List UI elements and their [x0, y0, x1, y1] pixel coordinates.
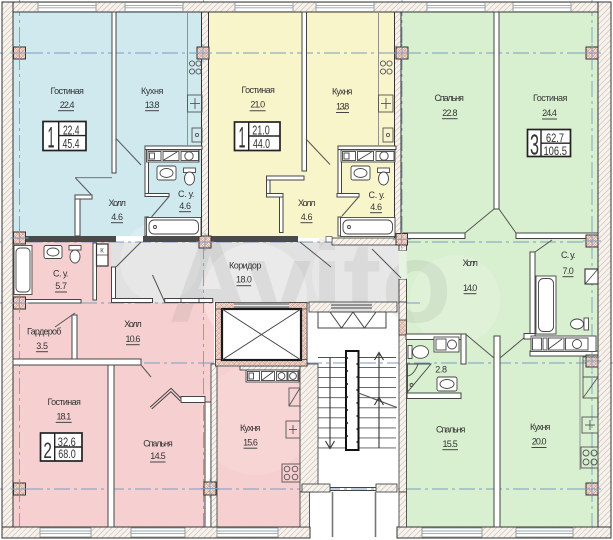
svg-text:2.8: 2.8 [435, 365, 447, 375]
svg-text:Кухня: Кухня [332, 87, 353, 97]
svg-text:13.8: 13.8 [145, 100, 160, 110]
svg-text:2: 2 [43, 438, 52, 463]
svg-text:С. у.: С. у. [178, 189, 194, 199]
svg-text:18.1: 18.1 [56, 412, 71, 422]
svg-text:4.6: 4.6 [370, 202, 382, 212]
svg-text:Гостиная: Гостиная [242, 85, 276, 95]
svg-text:21.0: 21.0 [252, 124, 270, 138]
svg-text:4.6: 4.6 [301, 212, 313, 222]
svg-text:106.5: 106.5 [543, 144, 567, 158]
svg-text:С. у.: С. у. [53, 269, 68, 279]
svg-text:4.6: 4.6 [111, 212, 123, 222]
svg-text:7.0: 7.0 [563, 266, 574, 276]
svg-text:Спальня: Спальня [436, 425, 466, 435]
svg-text:5.7: 5.7 [55, 281, 67, 291]
svg-text:13.8: 13.8 [336, 102, 349, 112]
svg-text:Гардероб: Гардероб [27, 327, 61, 337]
svg-text:22.4: 22.4 [60, 100, 75, 110]
svg-text:Кухня: Кухня [240, 423, 261, 433]
svg-text:Гостиная: Гостиная [533, 93, 568, 103]
svg-text:Холл: Холл [124, 319, 141, 329]
svg-text:1: 1 [239, 122, 246, 155]
svg-text:21.0: 21.0 [250, 100, 265, 110]
svg-text:С. у.: С. у. [369, 190, 385, 200]
svg-text:15.6: 15.6 [243, 437, 258, 447]
svg-text:68.0: 68.0 [58, 447, 76, 461]
svg-text:Кухня: Кухня [141, 86, 164, 96]
svg-text:14.0: 14.0 [463, 283, 477, 293]
svg-text:Спальня: Спальня [143, 438, 173, 448]
svg-text:Гостиная: Гостиная [48, 397, 82, 407]
svg-text:24.4: 24.4 [542, 108, 557, 118]
svg-text:18.0: 18.0 [236, 274, 252, 284]
svg-text:45.4: 45.4 [63, 137, 80, 151]
svg-text:К: К [100, 249, 104, 255]
svg-text:22.8: 22.8 [442, 108, 457, 118]
svg-text:Спальня: Спальня [435, 93, 465, 103]
svg-text:20.0: 20.0 [532, 436, 547, 446]
svg-text:62.7: 62.7 [546, 131, 564, 145]
svg-text:15.5: 15.5 [443, 439, 458, 449]
svg-text:22.4: 22.4 [63, 123, 80, 137]
svg-text:Гостиная: Гостиная [51, 86, 85, 96]
svg-text:3.5: 3.5 [36, 341, 48, 351]
svg-text:Холл: Холл [463, 258, 478, 268]
svg-text:44.0: 44.0 [253, 137, 270, 151]
svg-text:Холл: Холл [109, 198, 126, 208]
svg-text:14.5: 14.5 [150, 451, 165, 461]
svg-text:10.6: 10.6 [126, 334, 141, 344]
svg-text:Холл: Холл [298, 198, 315, 208]
svg-text:1: 1 [48, 122, 55, 155]
svg-text:Кухня: Кухня [530, 422, 551, 432]
svg-text:4.6: 4.6 [179, 201, 191, 211]
svg-text:С. у.: С. у. [561, 250, 575, 260]
svg-text:3: 3 [530, 130, 539, 162]
svg-text:Коридор: Коридор [229, 260, 261, 270]
